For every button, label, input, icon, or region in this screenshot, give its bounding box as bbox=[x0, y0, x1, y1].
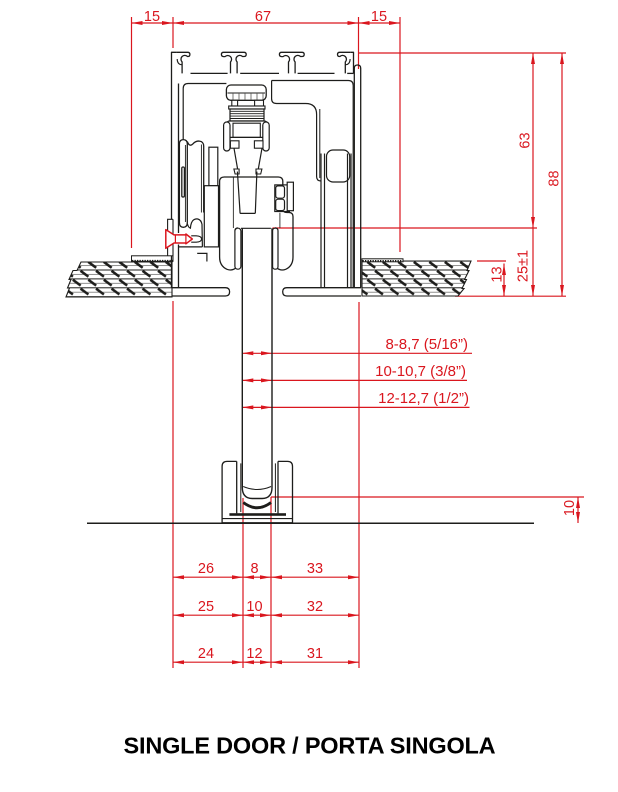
svg-text:26: 26 bbox=[198, 561, 214, 577]
svg-text:32: 32 bbox=[307, 599, 323, 615]
svg-text:12: 12 bbox=[246, 646, 262, 662]
svg-text:67: 67 bbox=[255, 9, 271, 25]
svg-text:10: 10 bbox=[246, 599, 262, 615]
svg-text:88: 88 bbox=[547, 170, 563, 186]
svg-text:63: 63 bbox=[518, 132, 534, 148]
svg-text:SINGLE DOOR / PORTA SINGOLA: SINGLE DOOR / PORTA SINGOLA bbox=[124, 733, 496, 759]
svg-text:25±1: 25±1 bbox=[516, 250, 532, 282]
svg-text:33: 33 bbox=[307, 561, 323, 577]
svg-text:10-10,7 (3/8”): 10-10,7 (3/8”) bbox=[375, 363, 466, 380]
svg-text:25: 25 bbox=[198, 599, 214, 615]
svg-text:8: 8 bbox=[250, 561, 258, 577]
svg-text:31: 31 bbox=[307, 646, 323, 662]
svg-text:10: 10 bbox=[562, 500, 578, 516]
svg-text:13: 13 bbox=[490, 266, 506, 282]
svg-text:12-12,7 (1/2”): 12-12,7 (1/2”) bbox=[378, 390, 469, 407]
svg-text:8-8,7 (5/16”): 8-8,7 (5/16”) bbox=[385, 336, 468, 353]
svg-text:15: 15 bbox=[144, 9, 160, 25]
svg-text:24: 24 bbox=[198, 646, 214, 662]
svg-text:15: 15 bbox=[371, 9, 387, 25]
